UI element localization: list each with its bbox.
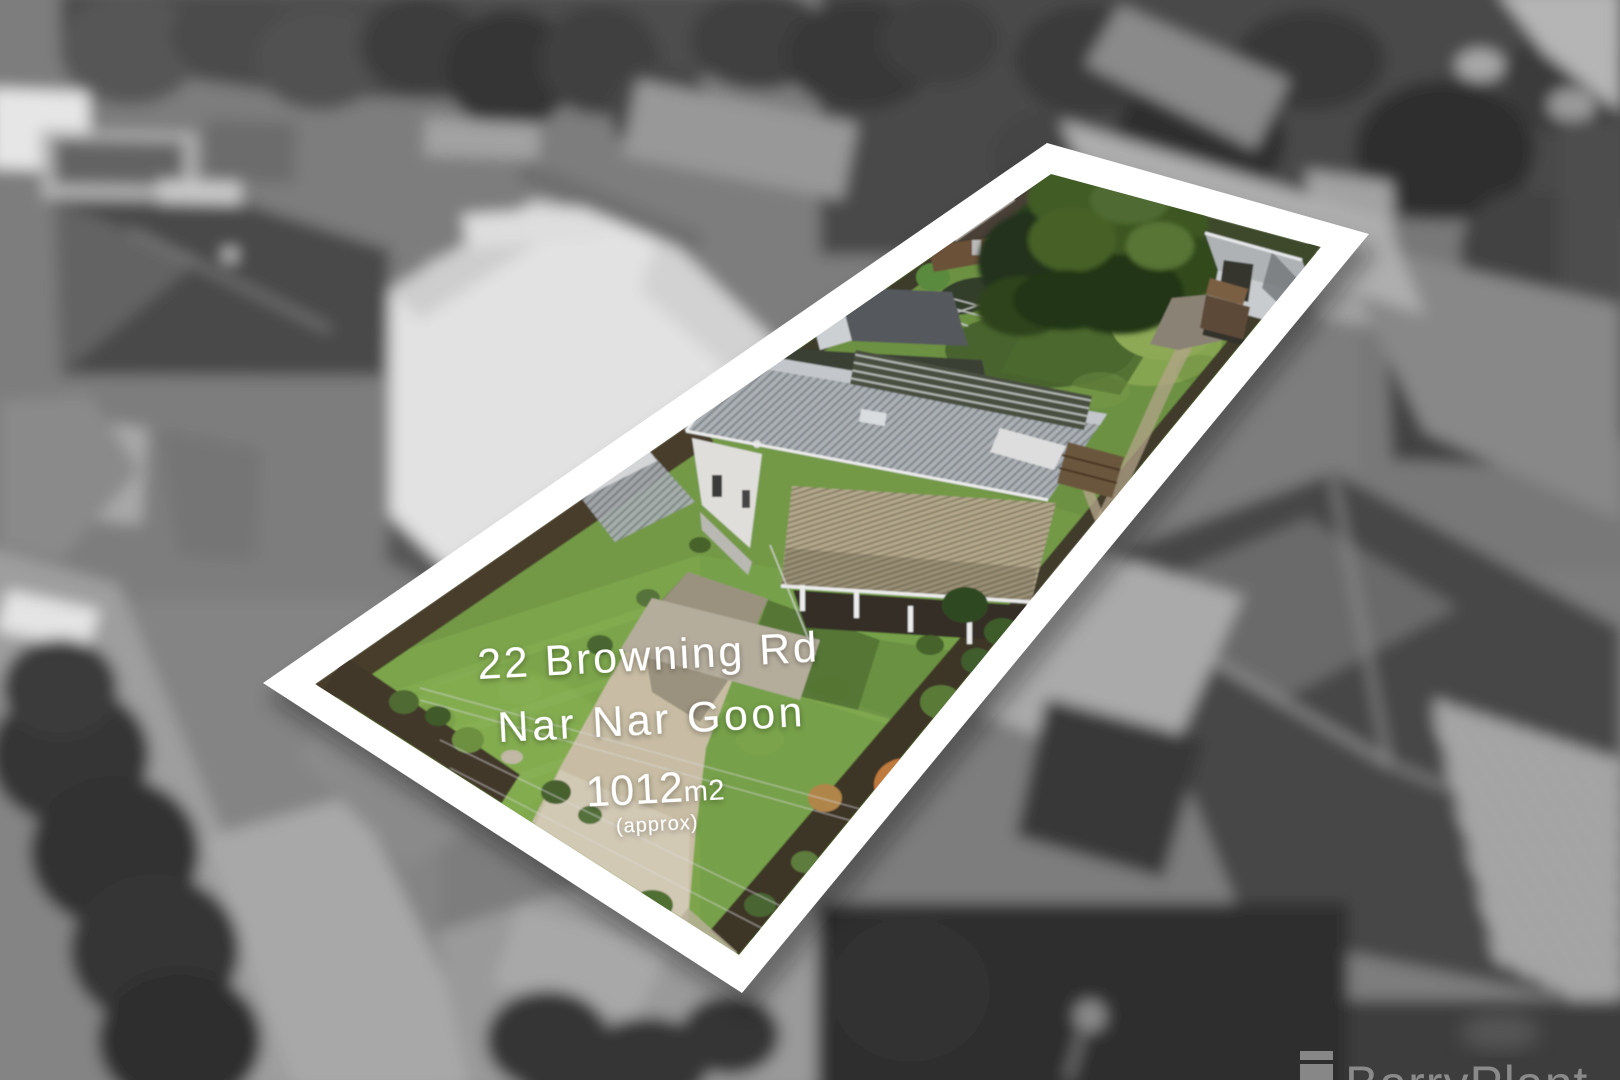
svg-text:(approx): (approx) (615, 812, 699, 838)
svg-text:BarryPlant: BarryPlant (1345, 1056, 1588, 1080)
